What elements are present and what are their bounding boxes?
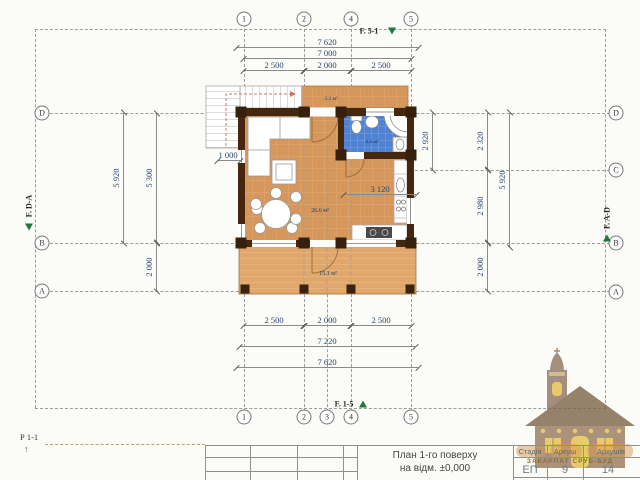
- titleblock-line: [513, 445, 514, 480]
- dim-line-stair: [218, 160, 240, 161]
- bathroom-sink: [366, 116, 379, 128]
- logo-roof: [525, 386, 635, 426]
- section-label: Р 1-1: [20, 432, 38, 442]
- dim-line-right-bath-inner: [487, 113, 488, 170]
- axis-bottom-2: 2: [297, 410, 312, 425]
- facade-label-right: F. A-D: [603, 207, 612, 229]
- facade-marker-right-icon: [603, 235, 611, 242]
- bathroom-door-opening: [346, 152, 364, 159]
- floor-plan: 26.6 м² 4.6 м² 15.1 м² 2.2 м²: [195, 80, 425, 300]
- dim-line-right-terrace: [487, 243, 488, 291]
- border-dash-left: [35, 29, 36, 408]
- dim-right-terrace: 2 000: [475, 257, 485, 276]
- border-dash-top: [35, 29, 606, 30]
- facade-label-bottom: F. 1-5: [335, 400, 354, 409]
- facade-marker-bottom-icon: [359, 401, 367, 408]
- axis-left-D: D: [35, 106, 50, 121]
- living-area-label: 26.6 м²: [311, 208, 329, 214]
- facade-marker-left-icon: [25, 224, 33, 231]
- titleblock-line: [357, 445, 358, 480]
- dim-line-right-kitchen: [487, 170, 488, 243]
- titleblock-line: [250, 445, 251, 480]
- titleblock-line: [513, 477, 640, 478]
- dim-right-bath-outer: 2 920: [420, 131, 430, 150]
- dim-top-axes: 7 000: [317, 48, 336, 58]
- axis-right-C: C: [609, 163, 624, 178]
- titleblock-line: [297, 445, 298, 480]
- axis-left-B: B: [35, 236, 50, 251]
- kitchen-counter-right: [394, 160, 407, 223]
- terrace-area-label: 15.1 м²: [319, 271, 337, 277]
- sheets-header: Аркушів: [597, 447, 625, 456]
- dim-left-terrace: 2 000: [144, 257, 154, 276]
- dim-right-kitchen: 2 980: [475, 196, 485, 215]
- logo-tower-window: [552, 382, 562, 396]
- logo-church-dome: [550, 353, 564, 372]
- dim-line-kitchen-width: [344, 194, 416, 195]
- dim-top-4-5: 2 500: [371, 60, 390, 70]
- dim-top-2-4: 2 000: [317, 60, 336, 70]
- dim-line-left-inner: [156, 114, 157, 243]
- dim-right-bath-inner: 2 320: [475, 131, 485, 150]
- dim-left-inner: 5 300: [144, 168, 154, 187]
- dim-line-top-axes: [244, 58, 411, 59]
- dim-left-outer: 5 920: [111, 168, 121, 187]
- dim-line-bot-1-2: [244, 325, 304, 326]
- porch-area-label: 2.2 м²: [324, 96, 338, 102]
- titleblock-line: [343, 445, 344, 480]
- titleblock-line: [205, 445, 640, 446]
- facade-label-top: F. 5-1: [360, 27, 379, 36]
- dim-line-left-terrace: [156, 243, 157, 291]
- bathroom: [344, 114, 408, 154]
- titleblock-line: [205, 471, 357, 472]
- axis-top-5: 5: [404, 12, 419, 27]
- dim-line-bot-2-4: [304, 325, 351, 326]
- dim-bot-overall: 7 620: [317, 357, 336, 367]
- dim-top-1-2: 2 500: [264, 60, 283, 70]
- dim-bot-4-5: 2 500: [371, 315, 390, 325]
- sheets-value: 14: [602, 464, 614, 476]
- entry-door-opening: [310, 108, 338, 117]
- dim-line-bot-4-5: [351, 325, 411, 326]
- axis-line-C: [415, 170, 610, 171]
- dim-line-right-bath-outer: [432, 113, 433, 170]
- dim-line-left-outer: [123, 113, 124, 243]
- axis-top-1: 1: [237, 12, 252, 27]
- sheet-header: Аркуш: [554, 447, 576, 456]
- axis-left-A: A: [35, 284, 50, 299]
- dim-line-bot-inner: [240, 346, 415, 347]
- axis-bottom-4: 4: [344, 410, 359, 425]
- dim-right-outer: 5 920: [497, 170, 507, 189]
- axis-bottom-5: 5: [404, 410, 419, 425]
- drawing-title-line1: План 1-го поверху: [393, 450, 478, 461]
- stage-value: ЕП: [522, 464, 537, 476]
- terrace-door-opening: [310, 240, 338, 247]
- dim-bot-inner: 7 220: [317, 336, 336, 346]
- floor-plan-drawing: 26.6 м² 4.6 м² 15.1 м² 2.2 м² 1 2 4 5 1 …: [0, 0, 640, 480]
- titleblock-line: [205, 445, 206, 480]
- dim-line-top-4-5: [351, 70, 411, 71]
- dim-line-right-outer: [509, 113, 510, 247]
- dim-stair: 1 000: [218, 150, 237, 160]
- axis-bottom-1: 1: [237, 410, 252, 425]
- company-name: ЗАКАРПАТ СРУБ-БУД: [527, 458, 613, 465]
- axis-right-A: A: [609, 285, 624, 300]
- bathroom-area-label: 4.6 м²: [365, 139, 379, 145]
- facade-marker-top-icon: [388, 28, 396, 35]
- terrace: [239, 245, 416, 294]
- dim-line-bot-overall: [237, 367, 418, 368]
- axis-right-D: D: [609, 106, 624, 121]
- dim-line-top-1-2: [244, 70, 304, 71]
- dim-bot-2-4: 2 000: [317, 315, 336, 325]
- dim-top-overall: 7 620: [317, 37, 336, 47]
- axis-top-4: 4: [344, 12, 359, 27]
- stage-header: Стадія: [518, 447, 541, 456]
- axis-top-2: 2: [297, 12, 312, 27]
- axis-bottom-3: 3: [320, 410, 335, 425]
- drawing-title-line2: на відм. ±0,000: [400, 463, 470, 474]
- titleblock-line: [205, 457, 357, 458]
- dim-bot-1-2: 2 500: [264, 315, 283, 325]
- section-arrow-icon: ↑: [24, 444, 29, 454]
- dim-line-top-2-4: [304, 70, 351, 71]
- toilet-bowl: [352, 121, 362, 134]
- section-line: [45, 444, 205, 445]
- entry-porch: [300, 86, 408, 108]
- facade-label-left: F. D-A: [25, 195, 34, 217]
- sheet-value: 9: [562, 464, 568, 476]
- dim-kitchen-width: 3 120: [370, 184, 389, 194]
